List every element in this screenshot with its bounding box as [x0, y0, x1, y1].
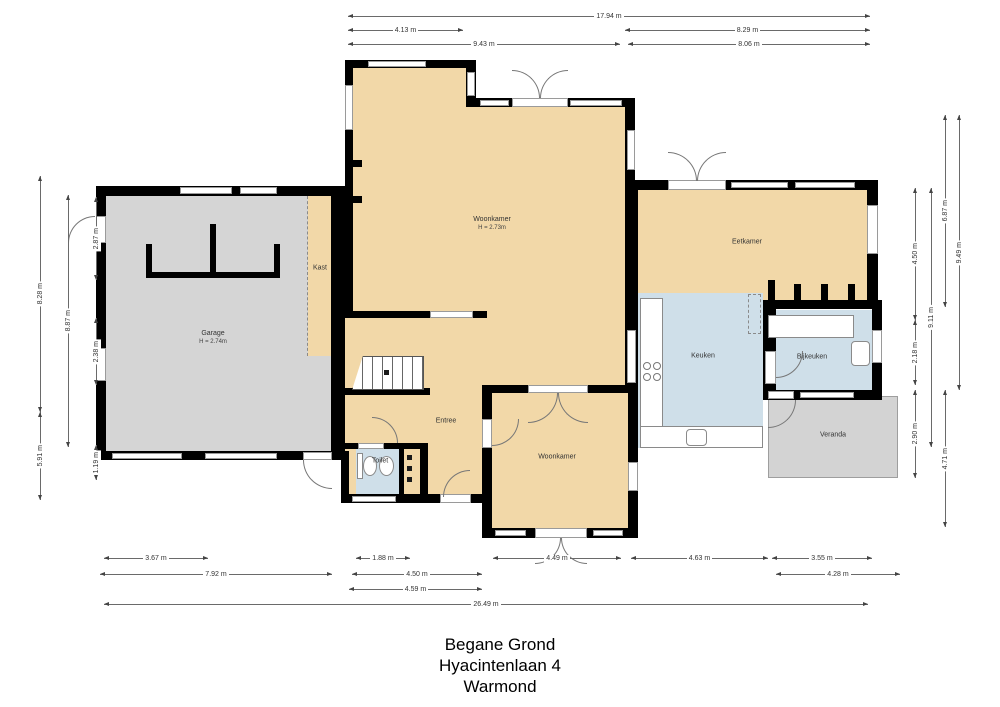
dimension-v: 2.38 m [92, 318, 101, 385]
dimension-h: 3.67 m [104, 554, 208, 563]
wall [345, 311, 430, 318]
room-label-veranda: Veranda [820, 431, 846, 440]
dimension-h: 4.50 m [352, 570, 482, 579]
stove-burner [653, 362, 661, 370]
dimension-label: 3.55 m [809, 555, 834, 563]
wall [146, 244, 152, 278]
dimension-label: 8.06 m [736, 41, 761, 49]
room-name: Woonkamer [538, 453, 576, 462]
room-name: Entree [436, 417, 457, 426]
wall [345, 160, 362, 167]
dimension-label: 2.87 m [93, 226, 101, 251]
dimension-v: 2.18 m [911, 320, 920, 385]
window [627, 330, 636, 383]
window [368, 61, 426, 67]
window [765, 351, 776, 384]
room-label-kast: Kast [313, 264, 327, 273]
meter-dot [407, 466, 412, 471]
window [467, 72, 475, 96]
wall [345, 196, 362, 203]
woonkamer-floor-b [473, 107, 628, 385]
room-label-bijkeuken: Bijkeuken [797, 353, 827, 362]
room-name: Woonkamer [473, 215, 511, 224]
door-swing [512, 70, 540, 98]
window [627, 130, 635, 170]
room-label-keuken: Keuken [691, 352, 715, 361]
wall [768, 280, 775, 302]
wall [399, 449, 404, 494]
door-swing [697, 152, 726, 181]
dimension-label: 8.29 m [735, 27, 760, 35]
window [535, 528, 587, 538]
wall [210, 224, 216, 278]
dimension-h: 4.49 m [493, 554, 621, 563]
room-label-garage: GarageH = 2.74m [199, 329, 227, 347]
dimension-label: 4.28 m [825, 571, 850, 579]
wall [341, 451, 349, 503]
window [872, 330, 882, 363]
dimension-label: 1.88 m [370, 555, 395, 563]
floor-plan-drawing: WoonkamerH = 2.73mGarageH = 2.74mKastEnt… [0, 0, 1000, 707]
dimension-h: 4.59 m [349, 585, 482, 594]
window [867, 205, 878, 254]
stove-burner [643, 362, 651, 370]
window [345, 85, 353, 130]
room-height-note: H = 2.73m [473, 224, 511, 233]
room-label-woonkamer-main: WoonkamerH = 2.73m [473, 215, 511, 233]
dimension-v: 8.28 m [36, 176, 45, 412]
dimension-v: 2.87 m [92, 197, 101, 280]
window [430, 311, 473, 318]
window [352, 496, 396, 502]
kast-divider [307, 196, 309, 356]
window [768, 391, 794, 399]
dimension-label: 3.67 m [143, 555, 168, 563]
door-swing [303, 460, 332, 489]
door-swing [668, 152, 697, 181]
dimension-label: 2.90 m [912, 421, 920, 446]
window [240, 187, 277, 194]
wall [482, 385, 492, 538]
dimension-label: 9.49 m [956, 240, 964, 265]
dimension-h: 4.28 m [776, 570, 900, 579]
dimension-h: 8.06 m [628, 40, 870, 49]
room-name: Toilet [372, 457, 388, 466]
open-above-marker [748, 294, 761, 334]
room-name: Kast [313, 264, 327, 273]
dimension-v: 8.87 m [64, 195, 73, 447]
plan-title-block: Begane Grond Hyacintenlaan 4 Warmond [0, 634, 1000, 697]
room-name: Garage [199, 329, 227, 338]
window [668, 180, 726, 190]
dimension-label: 8.28 m [37, 281, 45, 306]
dimension-label: 2.38 m [93, 339, 101, 364]
window [731, 182, 788, 188]
stair-marker [384, 370, 389, 375]
dimension-label: 6.87 m [942, 198, 950, 223]
room-name: Eetkamer [732, 238, 762, 247]
dimension-label: 9.11 m [928, 305, 936, 330]
plan-title-floor: Begane Grond [0, 634, 1000, 655]
dimension-label: 26.49 m [471, 601, 500, 609]
dimension-label: 2.18 m [912, 340, 920, 365]
stove-burner [643, 373, 651, 381]
room-name: Keuken [691, 352, 715, 361]
dimension-label: 5.91 m [37, 443, 45, 468]
dimension-v: 4.71 m [941, 390, 950, 527]
window [480, 100, 509, 106]
dimension-label: 8.87 m [65, 308, 73, 333]
dimension-v: 1.19 m [92, 445, 101, 480]
window [528, 385, 588, 393]
wall [274, 244, 280, 278]
dimension-label: 4.49 m [544, 555, 569, 563]
room-label-entree: Entree [436, 417, 457, 426]
sink [851, 341, 870, 366]
wall [848, 284, 855, 302]
dimension-label: 4.13 m [393, 27, 418, 35]
meter-dot [407, 477, 412, 482]
dimension-h: 17.94 m [348, 12, 870, 21]
dimension-v: 6.87 m [941, 115, 950, 307]
dimension-h: 4.63 m [631, 554, 768, 563]
window [205, 453, 277, 459]
sink [686, 429, 707, 446]
dimension-label: 4.59 m [403, 586, 428, 594]
window [593, 530, 623, 536]
counter [768, 315, 854, 338]
dimension-h: 4.13 m [348, 26, 463, 35]
dimension-label: 1.19 m [93, 450, 101, 475]
dimension-label: 9.43 m [471, 41, 496, 49]
window [495, 530, 526, 536]
window [628, 462, 638, 491]
wall [867, 258, 878, 300]
dimension-label: 7.92 m [203, 571, 228, 579]
plan-title-address: Hyacintenlaan 4 [0, 655, 1000, 676]
dimension-v: 4.50 m [911, 188, 920, 320]
stove-burner [653, 373, 661, 381]
toilet-tank [357, 453, 363, 479]
dimension-h: 8.29 m [625, 26, 870, 35]
dimension-v: 9.49 m [955, 115, 964, 390]
dimension-label: 17.94 m [594, 13, 623, 21]
dimension-v: 5.91 m [36, 412, 45, 500]
window [358, 443, 384, 449]
wall [331, 186, 345, 460]
room-label-woonkamer-2: Woonkamer [538, 453, 576, 462]
plan-title-city: Warmond [0, 676, 1000, 697]
room-name: Veranda [820, 431, 846, 440]
kast-floor [308, 196, 331, 356]
dimension-label: 4.50 m [912, 241, 920, 266]
dimension-h: 3.55 m [772, 554, 872, 563]
dimension-h: 26.49 m [104, 600, 868, 609]
window [570, 100, 622, 106]
wall [473, 311, 487, 318]
window [112, 453, 182, 459]
wall [794, 284, 801, 302]
wall [821, 284, 828, 302]
door-swing [540, 70, 568, 98]
window [482, 419, 492, 448]
dimension-h: 1.88 m [356, 554, 410, 563]
room-label-eetkamer: Eetkamer [732, 238, 762, 247]
room-height-note: H = 2.74m [199, 338, 227, 347]
dimension-h: 7.92 m [100, 570, 332, 579]
window [800, 392, 854, 398]
window [180, 187, 232, 194]
dimension-label: 4.50 m [404, 571, 429, 579]
window [512, 98, 568, 107]
floor-plan: WoonkamerH = 2.73mGarageH = 2.74mKastEnt… [0, 0, 1000, 707]
garage-floor [105, 196, 331, 451]
dimension-label: 4.71 m [942, 446, 950, 471]
window [303, 452, 332, 460]
window [795, 182, 855, 188]
dimension-v: 9.11 m [927, 188, 936, 447]
wall [420, 443, 428, 494]
woonkamer-floor-a [351, 68, 473, 318]
meter-dot [407, 455, 412, 460]
dimension-h: 9.43 m [348, 40, 620, 49]
room-label-toilet: Toilet [372, 457, 388, 466]
dimension-v: 2.90 m [911, 390, 920, 478]
dimension-label: 4.63 m [687, 555, 712, 563]
room-name: Bijkeuken [797, 353, 827, 362]
